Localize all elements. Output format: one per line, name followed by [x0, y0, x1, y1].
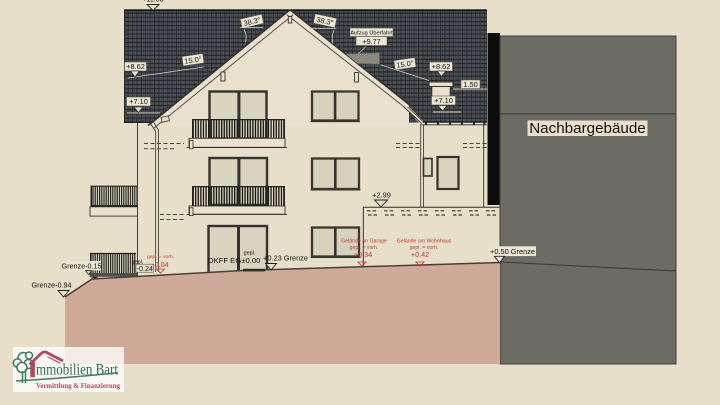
svg-text:Vermittlung & Finanzierung: Vermittlung & Finanzierung [36, 381, 120, 390]
svg-text:Aufzug Überfahrt: Aufzug Überfahrt [350, 30, 393, 37]
svg-text:+7.10: +7.10 [434, 96, 453, 105]
svg-text:OKFF EG±0.00: OKFF EG±0.00 [208, 256, 261, 265]
svg-text:-0.24: -0.24 [137, 264, 153, 273]
svg-text:+8.62: +8.62 [126, 62, 145, 71]
svg-text:+0.23 Grenze: +0.23 Grenze [263, 254, 308, 263]
svg-text:+8.62: +8.62 [432, 62, 451, 71]
svg-text:+2.99: +2.99 [372, 191, 391, 200]
svg-text:Grenze-0.15: Grenze-0.15 [62, 262, 102, 271]
svg-text:Nachbargebäude: Nachbargebäude [529, 120, 646, 137]
svg-text:+0.50 Grenze: +0.50 Grenze [490, 247, 535, 256]
svg-text:+9.77: +9.77 [362, 37, 380, 46]
svg-text:+0.42: +0.42 [411, 250, 429, 259]
svg-text:+0.34: +0.34 [354, 250, 372, 259]
svg-text:1.50: 1.50 [463, 80, 477, 89]
svg-text:+7.10: +7.10 [129, 97, 148, 106]
svg-text:+11.88: +11.88 [142, 0, 163, 4]
svg-text:Grenze-0.94: Grenze-0.94 [32, 281, 72, 290]
svg-text:Gelände an Garage: Gelände an Garage [341, 238, 387, 244]
svg-text:Gelände am Wohnhaus: Gelände am Wohnhaus [397, 238, 452, 244]
svg-text:-0.04: -0.04 [152, 260, 168, 269]
